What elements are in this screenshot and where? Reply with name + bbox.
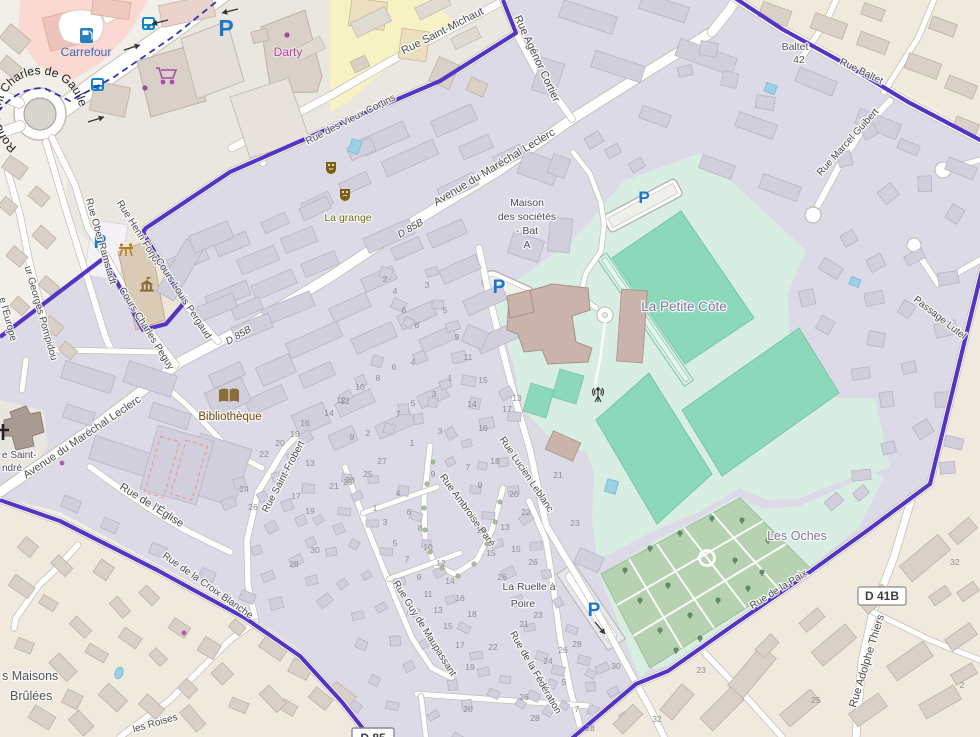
svg-text:6: 6 (402, 305, 407, 315)
svg-text:26: 26 (528, 557, 538, 567)
svg-text:21: 21 (329, 481, 339, 491)
svg-text:21: 21 (519, 619, 529, 629)
svg-text:e Saint-: e Saint- (2, 450, 36, 461)
svg-text:2: 2 (366, 428, 371, 438)
svg-text:13: 13 (512, 393, 522, 403)
svg-text:10: 10 (355, 382, 365, 392)
svg-text:22: 22 (521, 507, 531, 517)
svg-text:16: 16 (478, 423, 488, 433)
svg-text:9: 9 (350, 432, 355, 442)
svg-text:18: 18 (290, 429, 300, 439)
svg-text:30: 30 (310, 545, 320, 555)
svg-text:11: 11 (424, 589, 433, 599)
svg-text:4: 4 (411, 357, 416, 367)
svg-text:16: 16 (455, 593, 465, 603)
svg-text:3: 3 (383, 517, 388, 527)
svg-text:7: 7 (466, 462, 471, 472)
svg-text:12: 12 (336, 395, 346, 405)
svg-text:13: 13 (433, 605, 443, 615)
svg-text:2: 2 (383, 274, 388, 284)
svg-text:42: 42 (793, 54, 805, 66)
svg-text:5: 5 (411, 398, 416, 408)
svg-text:8: 8 (376, 373, 381, 383)
svg-text:La Petite Côte: La Petite Côte (641, 299, 727, 314)
svg-text:P: P (638, 188, 649, 207)
svg-text:1: 1 (410, 438, 415, 448)
svg-text:7: 7 (575, 704, 580, 714)
svg-text:23: 23 (343, 477, 353, 487)
svg-text:13: 13 (476, 525, 486, 535)
svg-text:26: 26 (497, 572, 507, 582)
svg-text:30: 30 (611, 661, 621, 671)
svg-text:17: 17 (502, 404, 512, 414)
svg-text:7: 7 (405, 554, 410, 564)
svg-text:25: 25 (363, 469, 373, 479)
svg-text:9: 9 (431, 469, 436, 479)
svg-text:8: 8 (418, 523, 423, 533)
svg-text:Baltet: Baltet (782, 41, 809, 53)
svg-text:11: 11 (464, 352, 473, 362)
svg-text:24: 24 (239, 484, 249, 494)
svg-text:32: 32 (950, 557, 960, 567)
svg-text:25: 25 (811, 695, 821, 705)
svg-text:La grange: La grange (324, 212, 371, 224)
svg-text:15: 15 (443, 621, 453, 631)
svg-text:28: 28 (572, 639, 582, 649)
svg-text:15: 15 (478, 375, 488, 385)
svg-text:21: 21 (553, 470, 563, 480)
svg-text:Darty: Darty (274, 45, 303, 59)
svg-text:26: 26 (519, 692, 529, 702)
svg-text:28: 28 (289, 559, 299, 569)
svg-text:5: 5 (393, 538, 398, 548)
svg-text:3: 3 (425, 280, 430, 290)
svg-text:Les Oches: Les Oches (767, 529, 827, 543)
svg-text:9: 9 (417, 572, 422, 582)
svg-text:P: P (493, 277, 506, 298)
svg-text:Brûlées: Brûlées (10, 689, 52, 703)
svg-text:20: 20 (509, 489, 519, 499)
svg-text:1: 1 (448, 373, 453, 383)
svg-text:6: 6 (407, 507, 412, 517)
svg-text:14: 14 (467, 399, 477, 409)
svg-text:A: A (523, 239, 530, 251)
svg-text:13: 13 (500, 522, 510, 532)
svg-text:18: 18 (490, 456, 500, 466)
svg-text:D 41B: D 41B (865, 589, 899, 603)
svg-text:17: 17 (455, 640, 465, 650)
svg-text:26: 26 (558, 645, 568, 655)
svg-text:22: 22 (259, 449, 269, 459)
svg-text:26: 26 (248, 502, 258, 512)
svg-text:4: 4 (393, 286, 398, 296)
svg-text:Bibliothèque: Bibliothèque (198, 411, 261, 423)
svg-text:ndré: ndré (2, 463, 22, 474)
svg-text:9: 9 (478, 480, 483, 490)
svg-text:- Bat: - Bat (516, 225, 538, 237)
svg-text:Maison: Maison (510, 197, 544, 209)
svg-text:5: 5 (443, 305, 448, 315)
svg-text:D 85: D 85 (360, 731, 386, 737)
svg-text:14: 14 (445, 576, 455, 586)
svg-text:5: 5 (562, 677, 567, 687)
svg-text:P: P (588, 600, 601, 621)
svg-text:des sociétés: des sociétés (498, 211, 556, 223)
svg-text:9: 9 (455, 332, 460, 342)
svg-text:20: 20 (463, 704, 473, 714)
svg-text:28: 28 (530, 713, 540, 723)
svg-text:23: 23 (570, 518, 580, 528)
svg-text:6: 6 (392, 362, 397, 372)
svg-text:P: P (218, 15, 233, 41)
svg-text:4: 4 (396, 488, 401, 498)
svg-text:15: 15 (486, 548, 496, 558)
svg-text:24: 24 (543, 656, 553, 666)
svg-text:2: 2 (960, 680, 965, 690)
svg-text:32: 32 (652, 714, 662, 724)
svg-text:22: 22 (488, 642, 498, 652)
svg-text:20: 20 (275, 438, 285, 448)
svg-text:Carrefour: Carrefour (61, 45, 112, 59)
svg-text:8: 8 (415, 320, 420, 330)
svg-text:27: 27 (377, 456, 387, 466)
svg-text:19: 19 (305, 506, 315, 516)
svg-text:17: 17 (291, 491, 301, 501)
svg-text:13: 13 (305, 458, 315, 468)
svg-text:28: 28 (585, 723, 595, 733)
svg-text:1: 1 (373, 503, 378, 513)
svg-text:s Maisons: s Maisons (2, 669, 58, 683)
svg-text:23: 23 (696, 665, 706, 675)
svg-text:19: 19 (465, 662, 475, 672)
svg-text:La Ruelle à: La Ruelle à (502, 581, 555, 593)
svg-text:18: 18 (467, 609, 477, 619)
svg-text:14: 14 (324, 408, 334, 418)
svg-text:3: 3 (438, 426, 443, 436)
svg-text:Poire: Poire (511, 598, 536, 610)
svg-text:7: 7 (396, 409, 401, 419)
svg-text:16: 16 (300, 418, 310, 428)
svg-text:3: 3 (432, 389, 437, 399)
svg-text:15: 15 (511, 544, 521, 554)
svg-text:23: 23 (533, 610, 543, 620)
